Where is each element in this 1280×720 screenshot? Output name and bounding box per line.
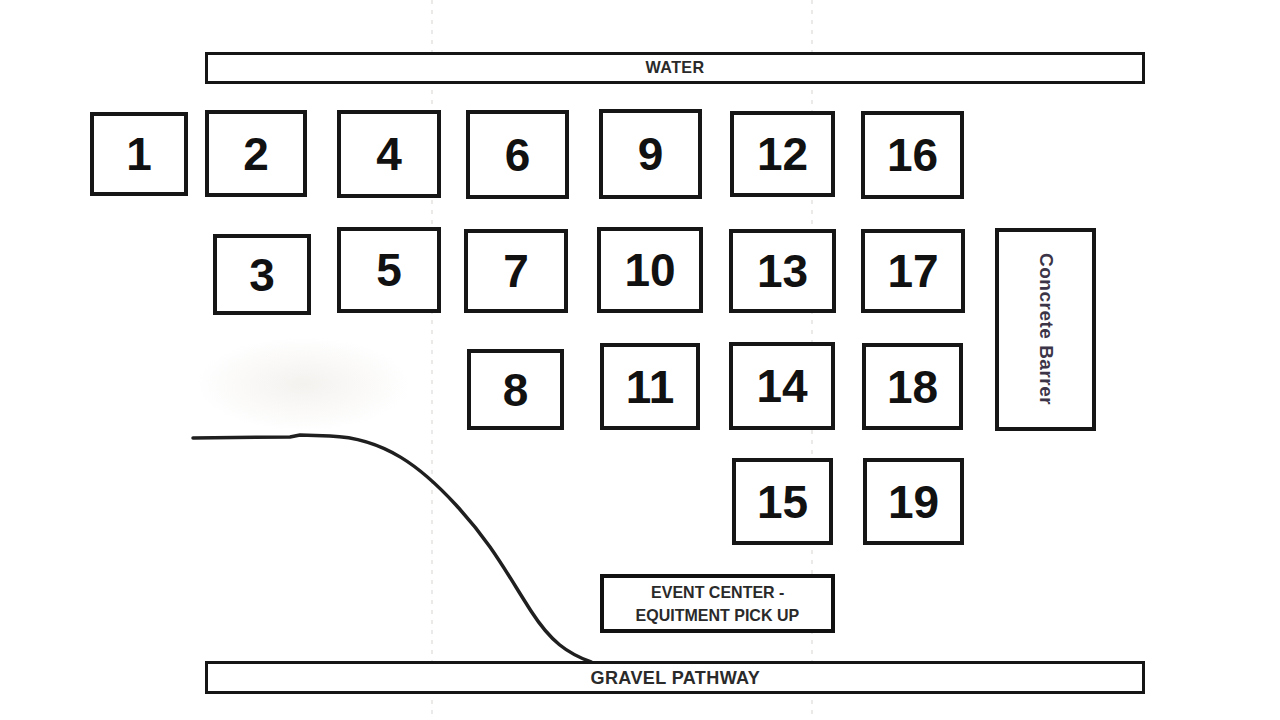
booth-3-label: 3 [249, 252, 275, 298]
booth-3: 3 [213, 234, 311, 315]
event-center-line2: EQUITMENT PICK UP [636, 604, 800, 627]
booth-15: 15 [732, 458, 833, 545]
water-bar-label: WATER [645, 58, 704, 78]
booth-5: 5 [337, 227, 441, 313]
gravel-pathway-bar: GRAVEL PATHWAY [205, 661, 1145, 694]
booth-18: 18 [862, 343, 963, 430]
gravel-pathway-label: GRAVEL PATHWAY [590, 667, 760, 689]
booth-11-label: 11 [626, 364, 675, 410]
booth-16: 16 [861, 111, 964, 199]
booth-14-label: 14 [756, 363, 807, 409]
booth-6: 6 [466, 110, 569, 199]
booth-13-label: 13 [757, 248, 808, 294]
fold-line-left [431, 0, 433, 720]
booth-14: 14 [729, 342, 835, 430]
booth-19: 19 [863, 458, 964, 545]
booth-16-label: 16 [887, 132, 938, 178]
ghost-smudge [198, 338, 408, 430]
booth-1: 1 [90, 112, 188, 196]
booth-11: 11 [600, 343, 700, 430]
concrete-barrier-label: Concrete Barrer [1035, 253, 1057, 405]
booth-9: 9 [599, 109, 702, 199]
booth-18-label: 18 [887, 364, 938, 410]
booth-12: 12 [730, 111, 835, 197]
event-center-box: EVENT CENTER - EQUITMENT PICK UP [600, 574, 835, 633]
booth-13: 13 [729, 229, 836, 313]
booth-19-label: 19 [888, 479, 939, 525]
site-layout-diagram: WATER 1 2 4 6 9 12 16 3 5 7 10 13 17 8 1… [0, 0, 1280, 720]
booth-10-label: 10 [624, 247, 675, 293]
booth-12-label: 12 [757, 131, 808, 177]
booth-7-label: 7 [503, 248, 529, 294]
booth-8-label: 8 [503, 367, 529, 413]
booth-7: 7 [464, 229, 568, 313]
booth-4-label: 4 [376, 131, 402, 177]
concrete-barrier-box: Concrete Barrer [995, 228, 1096, 431]
booth-10: 10 [597, 227, 703, 313]
booth-1-label: 1 [126, 131, 152, 177]
booth-5-label: 5 [376, 247, 402, 293]
water-bar: WATER [205, 52, 1145, 84]
booth-17-label: 17 [887, 248, 938, 294]
booth-2: 2 [205, 110, 307, 197]
booth-6-label: 6 [505, 132, 531, 178]
booth-4: 4 [337, 110, 441, 198]
booth-17: 17 [861, 229, 965, 313]
booth-2-label: 2 [243, 131, 269, 177]
booth-9-label: 9 [638, 131, 664, 177]
booth-8: 8 [467, 349, 564, 430]
booth-15-label: 15 [757, 479, 808, 525]
event-center-line1: EVENT CENTER - [651, 581, 784, 604]
